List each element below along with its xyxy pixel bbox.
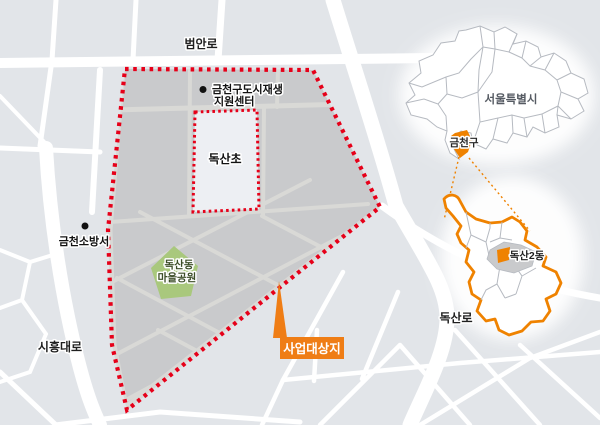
label-doksanro: 독산로 (439, 310, 472, 325)
label-park-line2: 마을공원 (158, 271, 197, 284)
label-support-center-line1: 금천구도시재생 (212, 82, 283, 96)
urban-regeneration-location-map: 사업대상지 범안로 시흥대로 독산로 금천구도시재생 지원센터 금천소방서 독산… (0, 0, 600, 425)
road-minor (133, 0, 136, 60)
label-gumcheon-gu: 금천구 (450, 136, 479, 149)
project-site-label: 사업대상지 (283, 341, 341, 356)
label-fire-station: 금천소방서 (59, 234, 110, 248)
label-school: 독산초 (208, 151, 241, 166)
label-beomanro: 범안로 (184, 36, 217, 51)
map-canvas: 사업대상지 범안로 시흥대로 독산로 금천구도시재생 지원센터 금천소방서 독산… (0, 0, 600, 425)
label-park-line1: 독산동 (165, 258, 194, 271)
support-center-dot-icon (200, 86, 207, 93)
label-siheungdaero: 시흥대로 (38, 339, 82, 354)
label-support-center-line2: 지원센터 (214, 94, 254, 108)
road-minor (218, 0, 222, 60)
label-doksan2dong: 독산2동 (510, 249, 545, 262)
fire-station-dot-icon (82, 223, 89, 230)
label-seoul-city: 서울특별시 (485, 92, 538, 106)
